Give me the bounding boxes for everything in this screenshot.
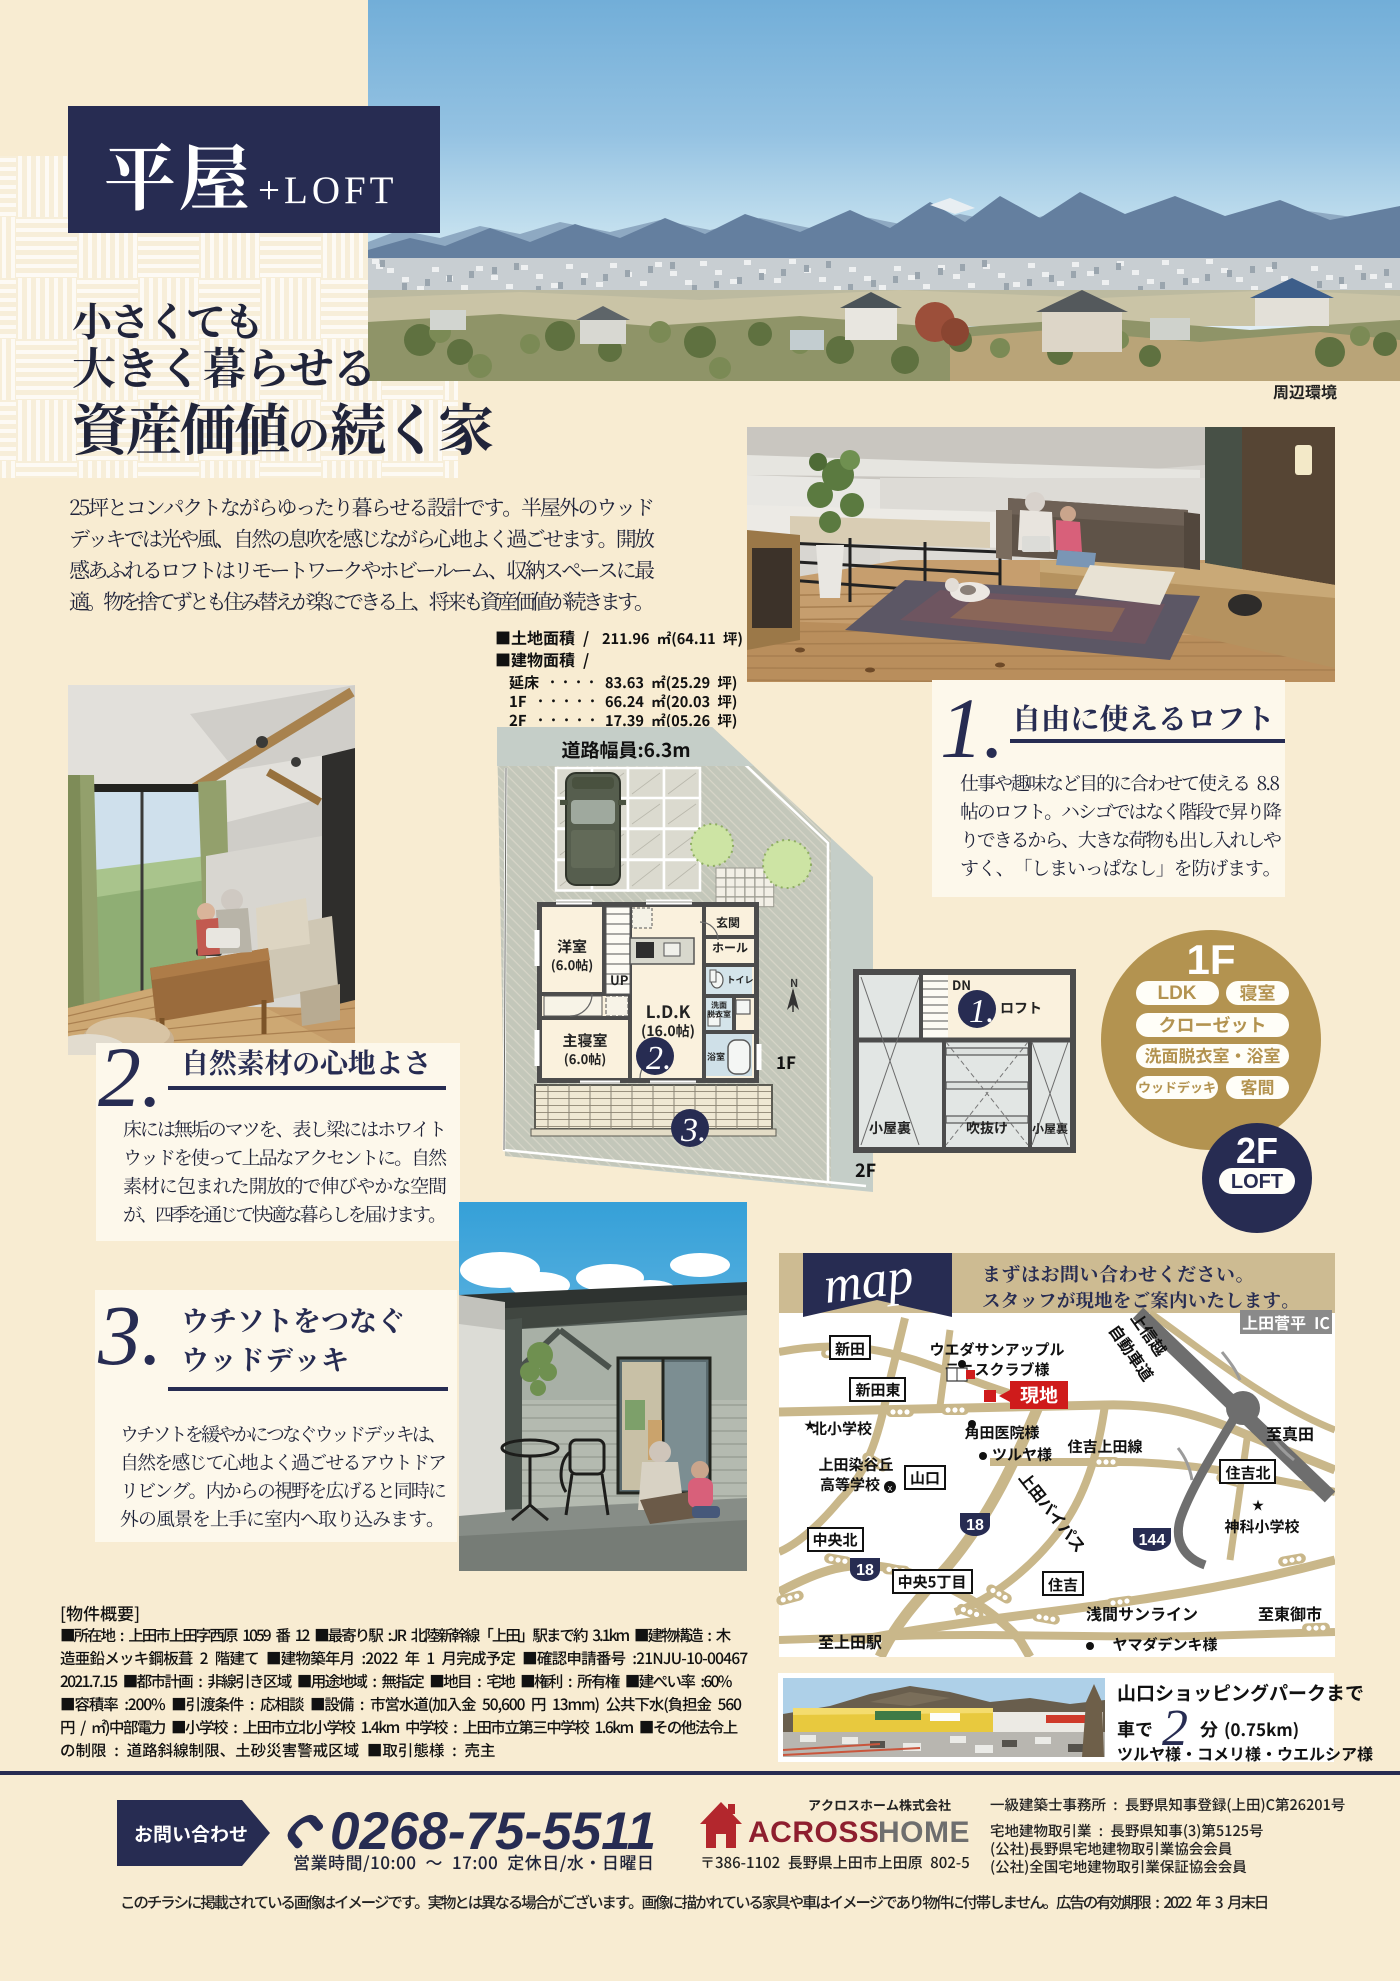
svg-text:2.: 2.: [646, 1040, 672, 1077]
svg-text:HOME: HOME: [878, 1816, 970, 1849]
svg-text:1F: 1F: [1186, 936, 1235, 983]
svg-text:3.: 3.: [97, 1287, 163, 1383]
svg-text:1.: 1.: [940, 680, 1005, 776]
svg-text:map: map: [821, 1247, 917, 1314]
svg-text:18: 18: [856, 1562, 874, 1579]
svg-text:LOFT: LOFT: [1231, 1171, 1283, 1193]
svg-text:2.: 2.: [98, 1029, 163, 1125]
svg-text:144: 144: [1139, 1532, 1166, 1549]
svg-text:3.: 3.: [680, 1112, 707, 1149]
svg-text:ACROSS: ACROSS: [748, 1816, 879, 1849]
svg-text:1.: 1.: [969, 993, 995, 1030]
svg-text:LDK: LDK: [1157, 983, 1196, 1004]
svg-text:x: x: [888, 1483, 893, 1493]
svg-text:18: 18: [966, 1517, 984, 1534]
svg-text:2F: 2F: [1236, 1130, 1278, 1171]
svg-text:+LOFT: +LOFT: [258, 169, 398, 212]
svg-text:0268-75-5511: 0268-75-5511: [330, 1802, 656, 1861]
